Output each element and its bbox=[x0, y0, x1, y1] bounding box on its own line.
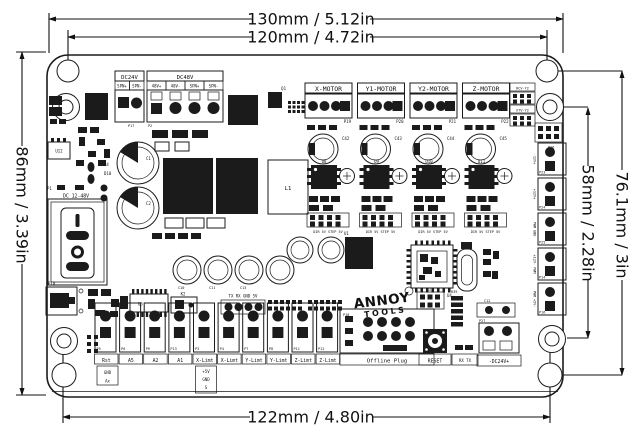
dim-height-holes-right-label: 58mm / 2.28in bbox=[579, 164, 598, 281]
c2-label: C2 bbox=[146, 201, 151, 206]
diagram-canvas: 130mm / 5.12in 120mm / 4.72in 86mm / 3.3… bbox=[0, 0, 640, 438]
header-p26: P26 bbox=[535, 123, 562, 150]
pin-header-grid-1 bbox=[268, 300, 302, 311]
capacitor-row: C10 C11 C13 bbox=[173, 237, 344, 290]
d10-label: D10 bbox=[104, 171, 112, 176]
mounting-hole-top-right bbox=[536, 60, 558, 82]
port-label: A5 bbox=[128, 358, 134, 364]
dc24v-port: P17 bbox=[128, 124, 134, 128]
dc24v-title: DC24V bbox=[121, 75, 138, 81]
port-number: P11 bbox=[294, 347, 300, 351]
port-number: P12 bbox=[318, 347, 324, 351]
right-port-p23: P23 -12V+ bbox=[533, 143, 567, 175]
resistor-stack-r39: R39 bbox=[451, 290, 463, 327]
ic-u12: U12 bbox=[48, 138, 70, 159]
port-label: Z-Limt bbox=[295, 358, 312, 364]
dim-height-right-label: 76.1mm / 3in bbox=[613, 171, 632, 278]
center-components: L1 U1 C10 C11 C13 bbox=[152, 95, 373, 290]
offline-plug-label: Offline Plug bbox=[367, 359, 407, 365]
port-number: P5 bbox=[97, 347, 101, 351]
cap-label: C44 bbox=[447, 136, 455, 141]
motor-port: P21 bbox=[449, 119, 457, 124]
bottom-port-row: P5 Rst P6 A5 P9 A2 P13 A1 bbox=[95, 303, 340, 393]
bottom-port-zlimit1: P11 Z-Limt bbox=[292, 303, 316, 364]
dc48v-port: P2 bbox=[148, 124, 152, 128]
dc24v-pin-label: SPN+ bbox=[117, 84, 127, 89]
cap-label: C42 bbox=[342, 136, 350, 141]
bottom-port-ylimit1: P7 Y-Limt bbox=[242, 303, 266, 364]
motor-section-z: Z-MOTOR P22 C45 U11 DIR 5V STEP 5V bbox=[463, 83, 513, 234]
trimpot bbox=[497, 169, 512, 184]
port-number: P14 bbox=[539, 276, 545, 280]
port-label: -12V+ bbox=[533, 154, 537, 165]
inner-hole-top-right bbox=[537, 94, 564, 121]
port-number: P8 bbox=[269, 347, 273, 351]
dim-width-holes: 120mm / 4.72in bbox=[68, 28, 547, 67]
right-port-p24: P24 +12V+ bbox=[533, 178, 567, 210]
dc24v-terminal: DC24V SPN+ SPN- P17 bbox=[115, 71, 144, 128]
jumper-label: RCV-Y2 bbox=[516, 86, 529, 90]
port-label: Y-Limt bbox=[270, 358, 287, 364]
rst-sub-line: GND bbox=[104, 370, 112, 375]
driver-ic-label: U11 bbox=[478, 159, 486, 164]
motor-port: P19 bbox=[344, 119, 352, 124]
port-label: Y-Limt bbox=[245, 358, 262, 364]
power-module-1 bbox=[163, 158, 213, 214]
l1-label: L1 bbox=[285, 186, 292, 192]
dc48v-pin-label: SPN- bbox=[209, 84, 219, 89]
port-label: PWM GND bbox=[533, 222, 537, 237]
trimpot bbox=[445, 169, 460, 184]
port-number: P9 bbox=[146, 347, 150, 351]
offline-plug: P18 Offline Plug bbox=[340, 309, 434, 365]
pcb-dimension-diagram: 130mm / 5.12in 120mm / 4.72in 86mm / 3.3… bbox=[0, 0, 640, 438]
step-dir-header-label: DIR 5V STEP 5V bbox=[471, 230, 501, 234]
limit-sub-box: +5V GND S bbox=[196, 366, 217, 393]
p27-port: P27 bbox=[479, 319, 485, 323]
inductor-top bbox=[228, 95, 258, 125]
bottom-port-zlimit2: P12 Z-Limt bbox=[316, 303, 340, 364]
port-number: P25 bbox=[539, 241, 545, 245]
dc48v-terminal: DC48V 48V+ 48V- SPN+ SPN- P2 bbox=[147, 71, 223, 128]
motor-section-y2: Y2-MOTOR P21 C44 U10 DIR 5V STEP 5V bbox=[410, 83, 460, 234]
port-label: PWM +5V- bbox=[533, 291, 537, 308]
switch-off-mark bbox=[73, 247, 83, 257]
dc24v-out-label: -DC24V+ bbox=[489, 359, 509, 365]
c10-label: C10 bbox=[178, 286, 184, 290]
c1-label: C1 bbox=[146, 156, 151, 161]
rxtx-block: RX TX bbox=[452, 345, 478, 365]
ic-u1: U1 bbox=[344, 231, 373, 269]
motor-label: Z-MOTOR bbox=[473, 85, 500, 93]
port-number: P24 bbox=[539, 206, 545, 210]
c11-label: C11 bbox=[209, 286, 215, 290]
p1-port: P1 bbox=[47, 186, 52, 191]
port-number: P13 bbox=[170, 347, 176, 351]
step-dir-header-label: DIR 5V STEP 5V bbox=[418, 230, 448, 234]
reset-label: RESET bbox=[428, 359, 443, 365]
uart-header-label: TX RX GND 5V bbox=[229, 294, 258, 299]
jumper-block-xtv: XTV-Y2 bbox=[510, 105, 535, 126]
port-label: A2 bbox=[153, 358, 159, 364]
rxtx-label: RX TX bbox=[459, 358, 472, 363]
port-number: P23 bbox=[539, 171, 545, 175]
rst-sub-box: GND Ax bbox=[97, 366, 118, 385]
brand-logo: ANNOY TOOLS bbox=[353, 290, 412, 321]
motor-label: X-MOTOR bbox=[315, 85, 342, 93]
u1-label: U1 bbox=[344, 231, 349, 236]
port-label: X-Limt bbox=[221, 358, 238, 364]
port-label: Rst bbox=[102, 358, 111, 364]
transformer bbox=[85, 93, 108, 120]
mounting-hole-top-left bbox=[57, 60, 79, 82]
motor-port: P22 bbox=[501, 119, 509, 124]
crystal bbox=[457, 242, 477, 291]
driver-ic-label: U10 bbox=[425, 159, 433, 164]
port-label: +12V+ bbox=[533, 189, 537, 200]
inner-hole-bottom-right bbox=[539, 326, 566, 353]
switch-on-mark bbox=[76, 214, 80, 227]
motor-section-x: X-MOTOR P19 C42 U8 DIR 5V STEP 5V bbox=[305, 83, 355, 234]
motor-label: Y1-MOTOR bbox=[366, 85, 397, 93]
port-label: Z-Limt bbox=[319, 358, 336, 364]
power-module-2 bbox=[216, 158, 258, 214]
limit-sub-line: +5V bbox=[202, 369, 210, 374]
port-label: +12V- PWM bbox=[533, 255, 537, 274]
limit-sub-line: S bbox=[205, 385, 208, 390]
bottom-port-ylimit2: P8 Y-Limt bbox=[267, 303, 291, 364]
motor-section-y1: Y1-MOTOR P20 C43 U9 DIR 5V STEP 5V bbox=[358, 83, 408, 234]
bulk-capacitors: C1 C2 bbox=[117, 142, 159, 229]
dc48v-pin-label: 48V+ bbox=[152, 84, 162, 89]
dc48v-pin-label: 48V- bbox=[171, 84, 181, 89]
u12-label: U12 bbox=[55, 149, 63, 154]
jumper-block-rcv: RCV-Y2 bbox=[510, 83, 535, 104]
dc48v-pin-label: SPN+ bbox=[190, 84, 200, 89]
r39-label: R39 bbox=[451, 290, 457, 294]
inductor-l1: L1 bbox=[268, 160, 308, 214]
dim-width-holes-label: 120mm / 4.72in bbox=[247, 28, 374, 47]
right-port-p25: P25 PWM GND bbox=[533, 213, 567, 245]
port-number: P16 bbox=[539, 311, 545, 315]
c13-label: C13 bbox=[240, 286, 246, 290]
port-number: P6 bbox=[121, 347, 125, 351]
port-number: P7 bbox=[244, 347, 248, 351]
driver-ic-label: U8 bbox=[322, 159, 327, 164]
rst-sub-line: Ax bbox=[105, 379, 110, 384]
usb-port: P10 bbox=[46, 281, 83, 315]
dc24v-pin-label: SPN- bbox=[132, 84, 142, 89]
c12-label: C12 bbox=[484, 299, 490, 303]
right-edge-connectors: P26 P23 -12V+ P24 +12V+ P25 PWM GND bbox=[533, 123, 567, 315]
trimpot bbox=[392, 169, 407, 184]
driver-ic-label: U9 bbox=[374, 159, 379, 164]
diode-cluster: R4 D10 bbox=[88, 162, 112, 202]
mounting-hole-bottom-right bbox=[538, 363, 562, 387]
right-port-p16: P16 PWM +5V- bbox=[533, 283, 567, 315]
transistor-q1: Q1 bbox=[268, 86, 305, 113]
motor-port: P20 bbox=[396, 119, 404, 124]
reset-button: RESET bbox=[419, 329, 451, 365]
mounting-hole-bottom-left bbox=[52, 363, 76, 387]
port-number: P3 bbox=[195, 347, 199, 351]
port-number: P4 bbox=[220, 347, 224, 351]
step-dir-header-label: DIR 5V STEP 5V bbox=[313, 230, 343, 234]
q1-label: Q1 bbox=[281, 86, 286, 91]
k2-label: K2 bbox=[181, 292, 186, 297]
r4-label: R4 bbox=[104, 162, 109, 167]
port-label: X-Limt bbox=[196, 358, 213, 364]
jumper-label: XTV-Y2 bbox=[516, 108, 529, 112]
dc48v-title: DC48V bbox=[177, 75, 194, 81]
cap-label: C43 bbox=[395, 136, 403, 141]
u4-label: U4 bbox=[447, 293, 452, 298]
usb-port-label: P10 bbox=[48, 281, 56, 286]
dc24v-out-terminal: C12 P27 -DC24V+ bbox=[477, 299, 521, 366]
motor-label: Y2-MOTOR bbox=[418, 85, 449, 93]
trimpot bbox=[340, 169, 355, 184]
cap-label: C45 bbox=[500, 136, 508, 141]
limit-sub-line: GND bbox=[202, 377, 210, 382]
dim-height-left-label: 86mm / 3.39in bbox=[13, 146, 32, 263]
dim-height-left: 86mm / 3.39in bbox=[13, 52, 47, 395]
dim-width-outer-label: 130mm / 5.12in bbox=[247, 10, 374, 29]
right-port-p14: P14 +12V- PWM bbox=[533, 248, 567, 280]
port-label: A1 bbox=[177, 358, 183, 364]
dim-width-bottom-label: 122mm / 4.80in bbox=[247, 408, 374, 427]
inner-hole-bottom-left bbox=[51, 328, 78, 355]
step-dir-header-label: DIR 5V STEP 5V bbox=[366, 230, 396, 234]
power-switch: DC 12-48V bbox=[48, 194, 107, 286]
